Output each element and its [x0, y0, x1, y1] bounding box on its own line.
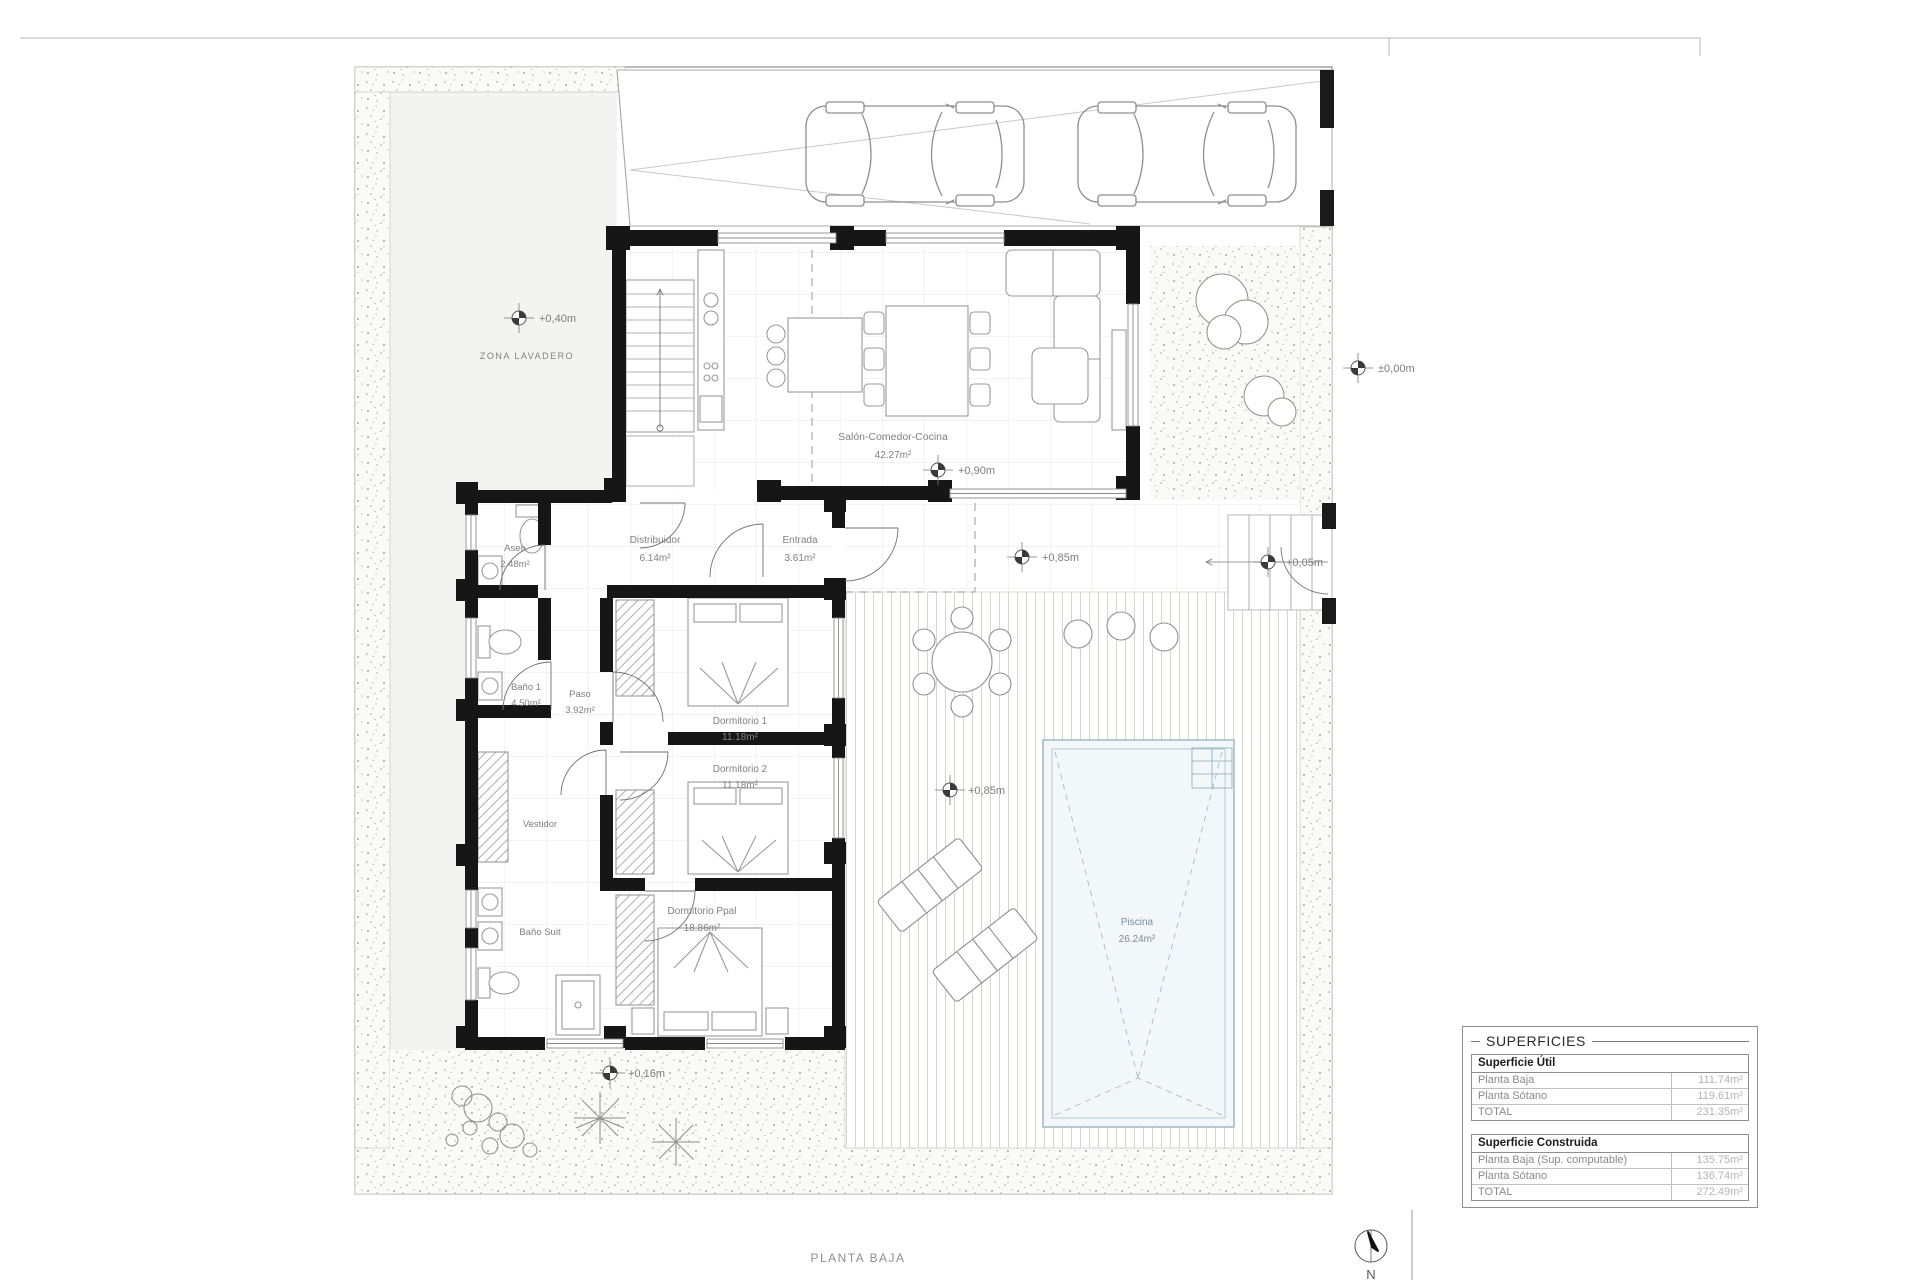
- room-label-aseo: Aseo: [504, 543, 526, 554]
- room-area-distribuidor: 6.14m²: [639, 553, 671, 564]
- table-row: Planta Sótano 119.61m²: [1472, 1089, 1748, 1105]
- kitchen-counter: [698, 250, 724, 430]
- sink-aseo: [478, 556, 502, 586]
- svg-text:±0,00m: ±0,00m: [1378, 363, 1415, 375]
- title-rule-right: [1592, 1041, 1749, 1042]
- shower-banosuit: [556, 975, 600, 1035]
- table-row: Planta Baja 111.74m²: [1472, 1073, 1748, 1089]
- closet-ppal: [616, 895, 654, 1005]
- palm-icon: [652, 1118, 700, 1166]
- table-row: Planta Baja (Sup. computable) 135.75m²: [1472, 1153, 1748, 1169]
- room-label-piscina: Piscina: [1121, 917, 1154, 928]
- room-area-aseo: 2.48m²: [500, 559, 530, 570]
- bed-dorm1: [688, 598, 788, 706]
- room-label-dorm2: Dormitorio 2: [713, 764, 768, 775]
- room-label-paso: Paso: [569, 689, 591, 700]
- svg-text:+0,85m: +0,85m: [968, 785, 1005, 797]
- room-area-dormppal: 18.86m²: [684, 923, 721, 934]
- room-label-banosuit: Baño Suit: [519, 927, 561, 938]
- room-label-dorm1: Dormitorio 1: [713, 716, 768, 727]
- north-arrow-icon: N: [1355, 1230, 1387, 1280]
- room-label-salon: Salón-Comedor-Cocina: [838, 431, 948, 443]
- page-title: PLANTA BAJA: [811, 1251, 906, 1265]
- closet-vestidor: [478, 752, 508, 862]
- svg-text:+0,85m: +0,85m: [1042, 552, 1079, 564]
- svg-text:+0,16m: +0,16m: [628, 1068, 665, 1080]
- kitchen-island: [767, 318, 862, 392]
- dining-table: [864, 306, 990, 416]
- bed-dorm2: [688, 782, 788, 874]
- section-header: Superficie Útil: [1472, 1055, 1748, 1073]
- room-label-bano1: Baño 1: [511, 682, 541, 693]
- driveway: [617, 70, 1334, 226]
- room-label-dormppal: Dormitorio Ppal: [668, 906, 737, 917]
- closet-dorm2: [616, 790, 654, 874]
- table-row: TOTAL 231.35m²: [1472, 1105, 1748, 1120]
- superficies-title-row: SUPERFICIES: [1471, 1033, 1749, 1049]
- room-label-vestidor: Vestidor: [523, 819, 557, 830]
- room-area-dorm1: 11.18m²: [722, 732, 759, 743]
- superficies-table: SUPERFICIES Superficie Útil Planta Baja …: [1462, 1026, 1758, 1208]
- room-label-lavadero: ZONA LAVADERO: [480, 351, 574, 361]
- superficies-title: SUPERFICIES: [1486, 1033, 1586, 1049]
- svg-text:+0,40m: +0,40m: [539, 313, 576, 325]
- room-area-paso: 3.92m²: [565, 705, 595, 716]
- superficie-util-table: Superficie Útil Planta Baja 111.74m² Pla…: [1471, 1054, 1749, 1121]
- svg-text:+0,90m: +0,90m: [958, 465, 995, 477]
- table-row: Planta Sótano 136.74m²: [1472, 1169, 1748, 1185]
- superficie-construida-table: Superficie Construida Planta Baja (Sup. …: [1471, 1134, 1749, 1201]
- floor-plan-sheet: +0,40m ±0,00m +0,90m +0,85m +0,05m +0,85…: [0, 0, 1920, 1280]
- room-area-entrada: 3.61m²: [784, 553, 816, 564]
- room-area-dorm2: 11.18m²: [722, 780, 759, 791]
- svg-text:+0,05m: +0,05m: [1286, 557, 1323, 569]
- room-area-bano1: 4.50m²: [511, 698, 541, 709]
- room-label-entrada: Entrada: [782, 535, 817, 546]
- section-header: Superficie Construida: [1472, 1135, 1748, 1153]
- room-label-distribuidor: Distribuidor: [630, 535, 681, 546]
- level-marker: ±0,00m: [1343, 353, 1415, 383]
- title-rule-left: [1471, 1041, 1480, 1042]
- north-label: N: [1366, 1267, 1375, 1280]
- room-area-salon: 42.27m²: [875, 450, 912, 461]
- stairs: [626, 280, 694, 486]
- room-area-piscina: 26.24m²: [1119, 934, 1156, 945]
- closet-dorm1: [616, 600, 654, 696]
- sink-bano1: [478, 672, 502, 700]
- table-row: TOTAL 272.49m²: [1472, 1185, 1748, 1200]
